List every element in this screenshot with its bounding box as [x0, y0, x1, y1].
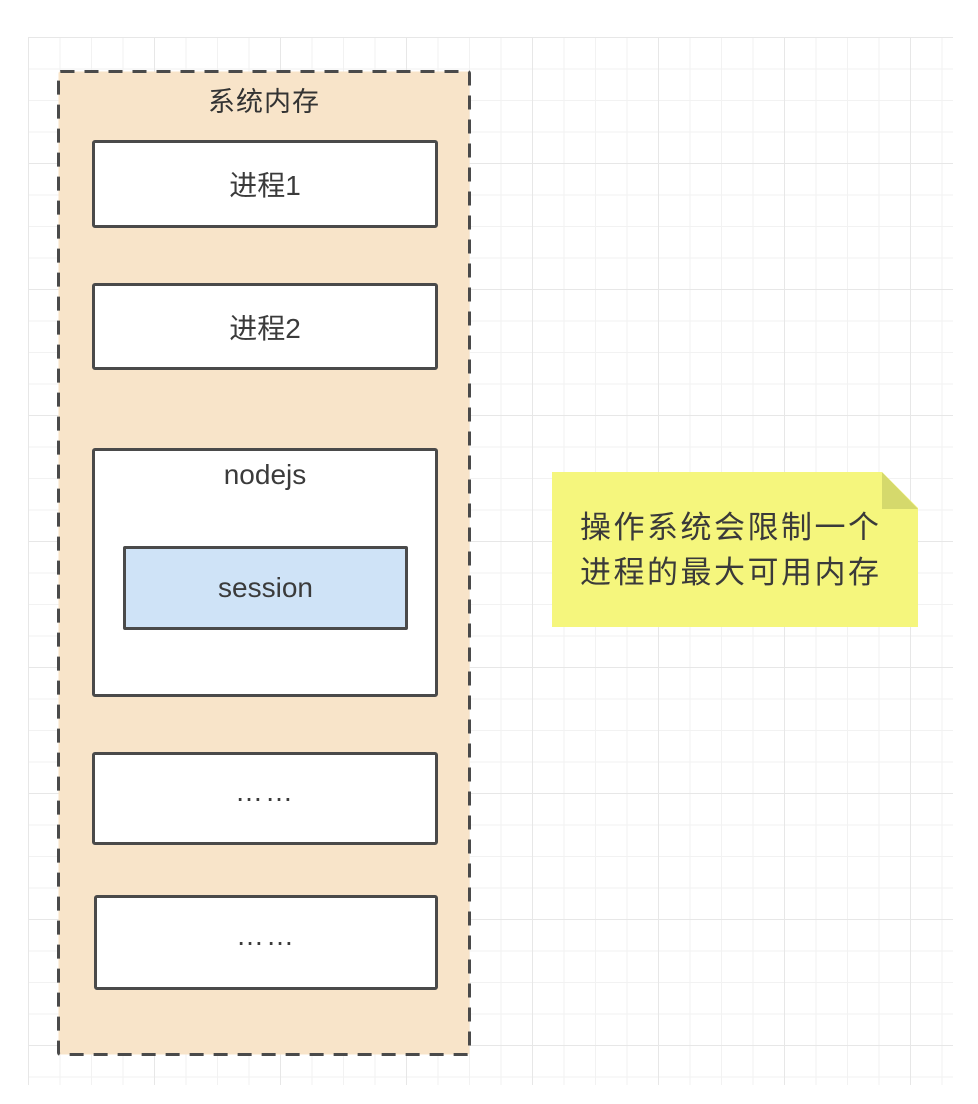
- ellipsis-label-1: ……: [235, 776, 295, 808]
- note-text-line-2: 进程的最大可用内存: [580, 550, 882, 595]
- ellipsis-label-2: ……: [236, 920, 296, 952]
- process1-label: 进程1: [229, 164, 301, 204]
- system-memory-container: 系统内存 进程1 进程2 nodejs session …… ……: [57, 70, 471, 1056]
- note-text-line-1: 操作系统会限制一个: [580, 505, 882, 550]
- session-label: session: [218, 572, 313, 604]
- process2-label: 进程2: [229, 307, 301, 347]
- session-box: session: [123, 546, 408, 630]
- process1-box: 进程1: [92, 140, 438, 228]
- nodejs-box: nodejs session: [92, 448, 438, 697]
- diagram-canvas: 系统内存 进程1 进程2 nodejs session …… …… 操作系统会限…: [0, 0, 978, 1104]
- nodejs-label: nodejs: [95, 459, 435, 491]
- process2-box: 进程2: [92, 283, 438, 370]
- system-memory-label: 系统内存: [57, 80, 471, 119]
- note-text: 操作系统会限制一个 进程的最大可用内存: [580, 505, 882, 595]
- sticky-note: 操作系统会限制一个 进程的最大可用内存: [552, 472, 918, 627]
- ellipsis-box-2: ……: [94, 895, 438, 990]
- ellipsis-box-1: ……: [92, 752, 438, 845]
